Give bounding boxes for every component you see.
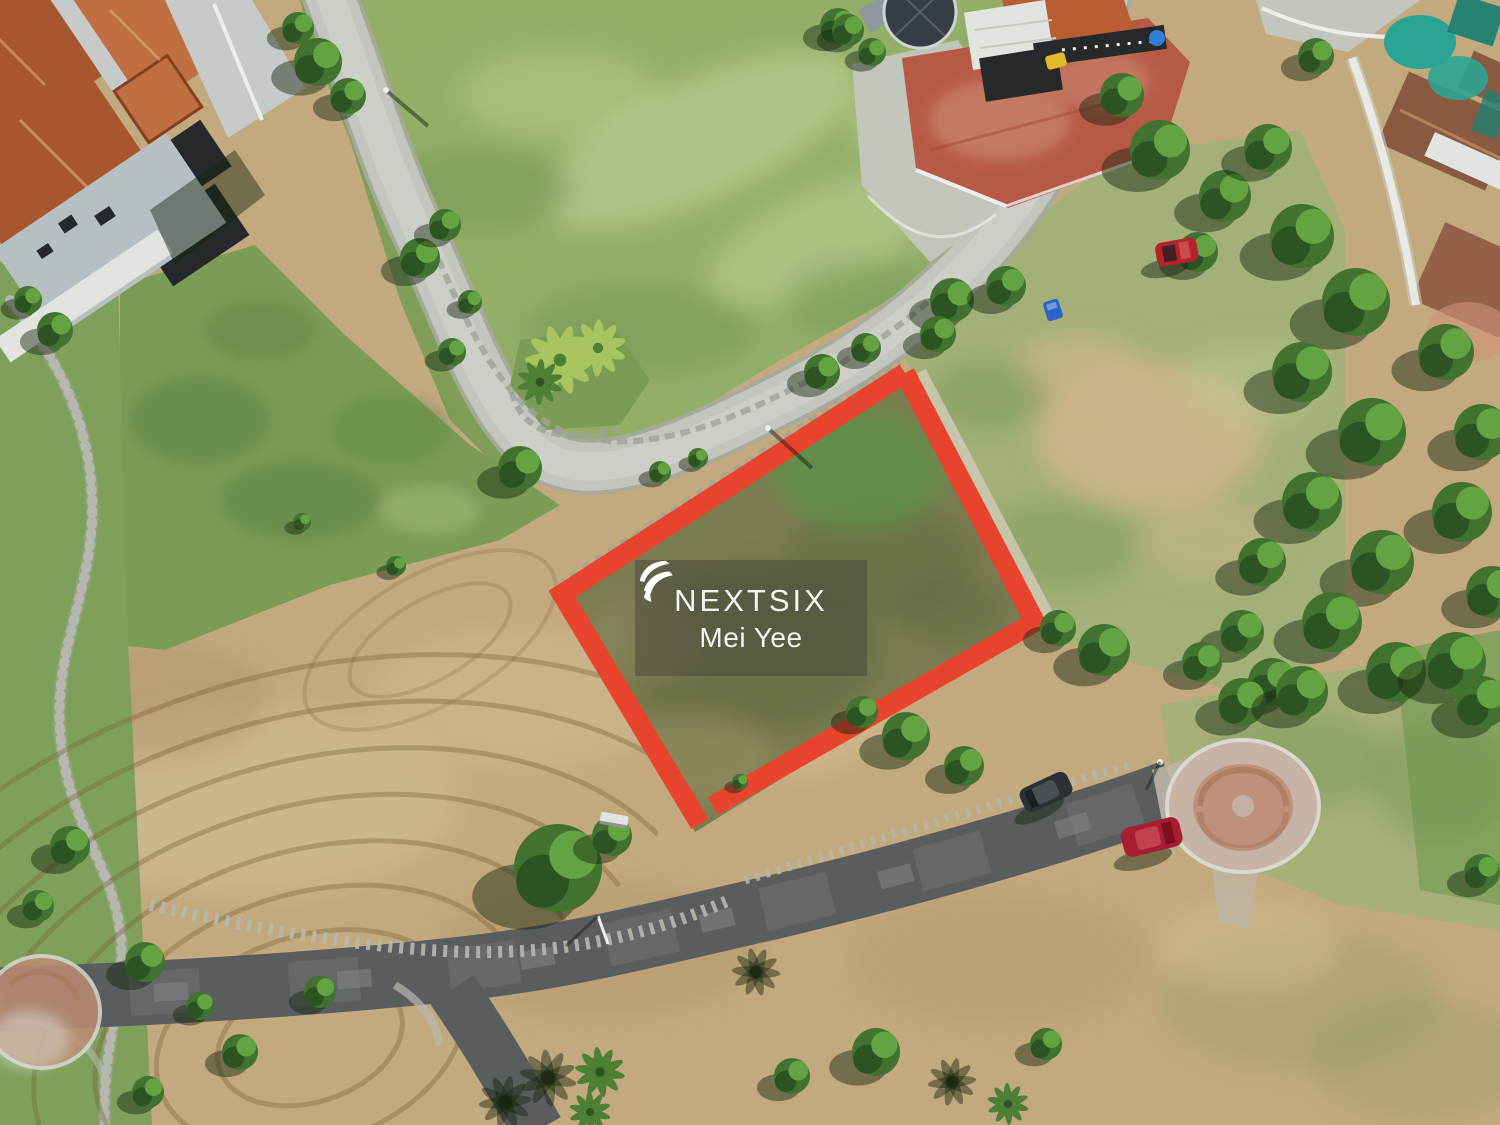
aerial-photo: NEXTSIX Mei Yee: [0, 0, 1500, 1125]
watermark-panel: NEXTSIX Mei Yee: [635, 560, 867, 676]
blue-barrel: [1149, 30, 1165, 46]
watermark-agent-name: Mei Yee: [699, 624, 802, 652]
watermark-brand-row: NEXTSIX: [674, 585, 828, 616]
nextsix-logo-icon: [635, 560, 675, 608]
watermark-brand: NEXTSIX: [674, 585, 828, 616]
